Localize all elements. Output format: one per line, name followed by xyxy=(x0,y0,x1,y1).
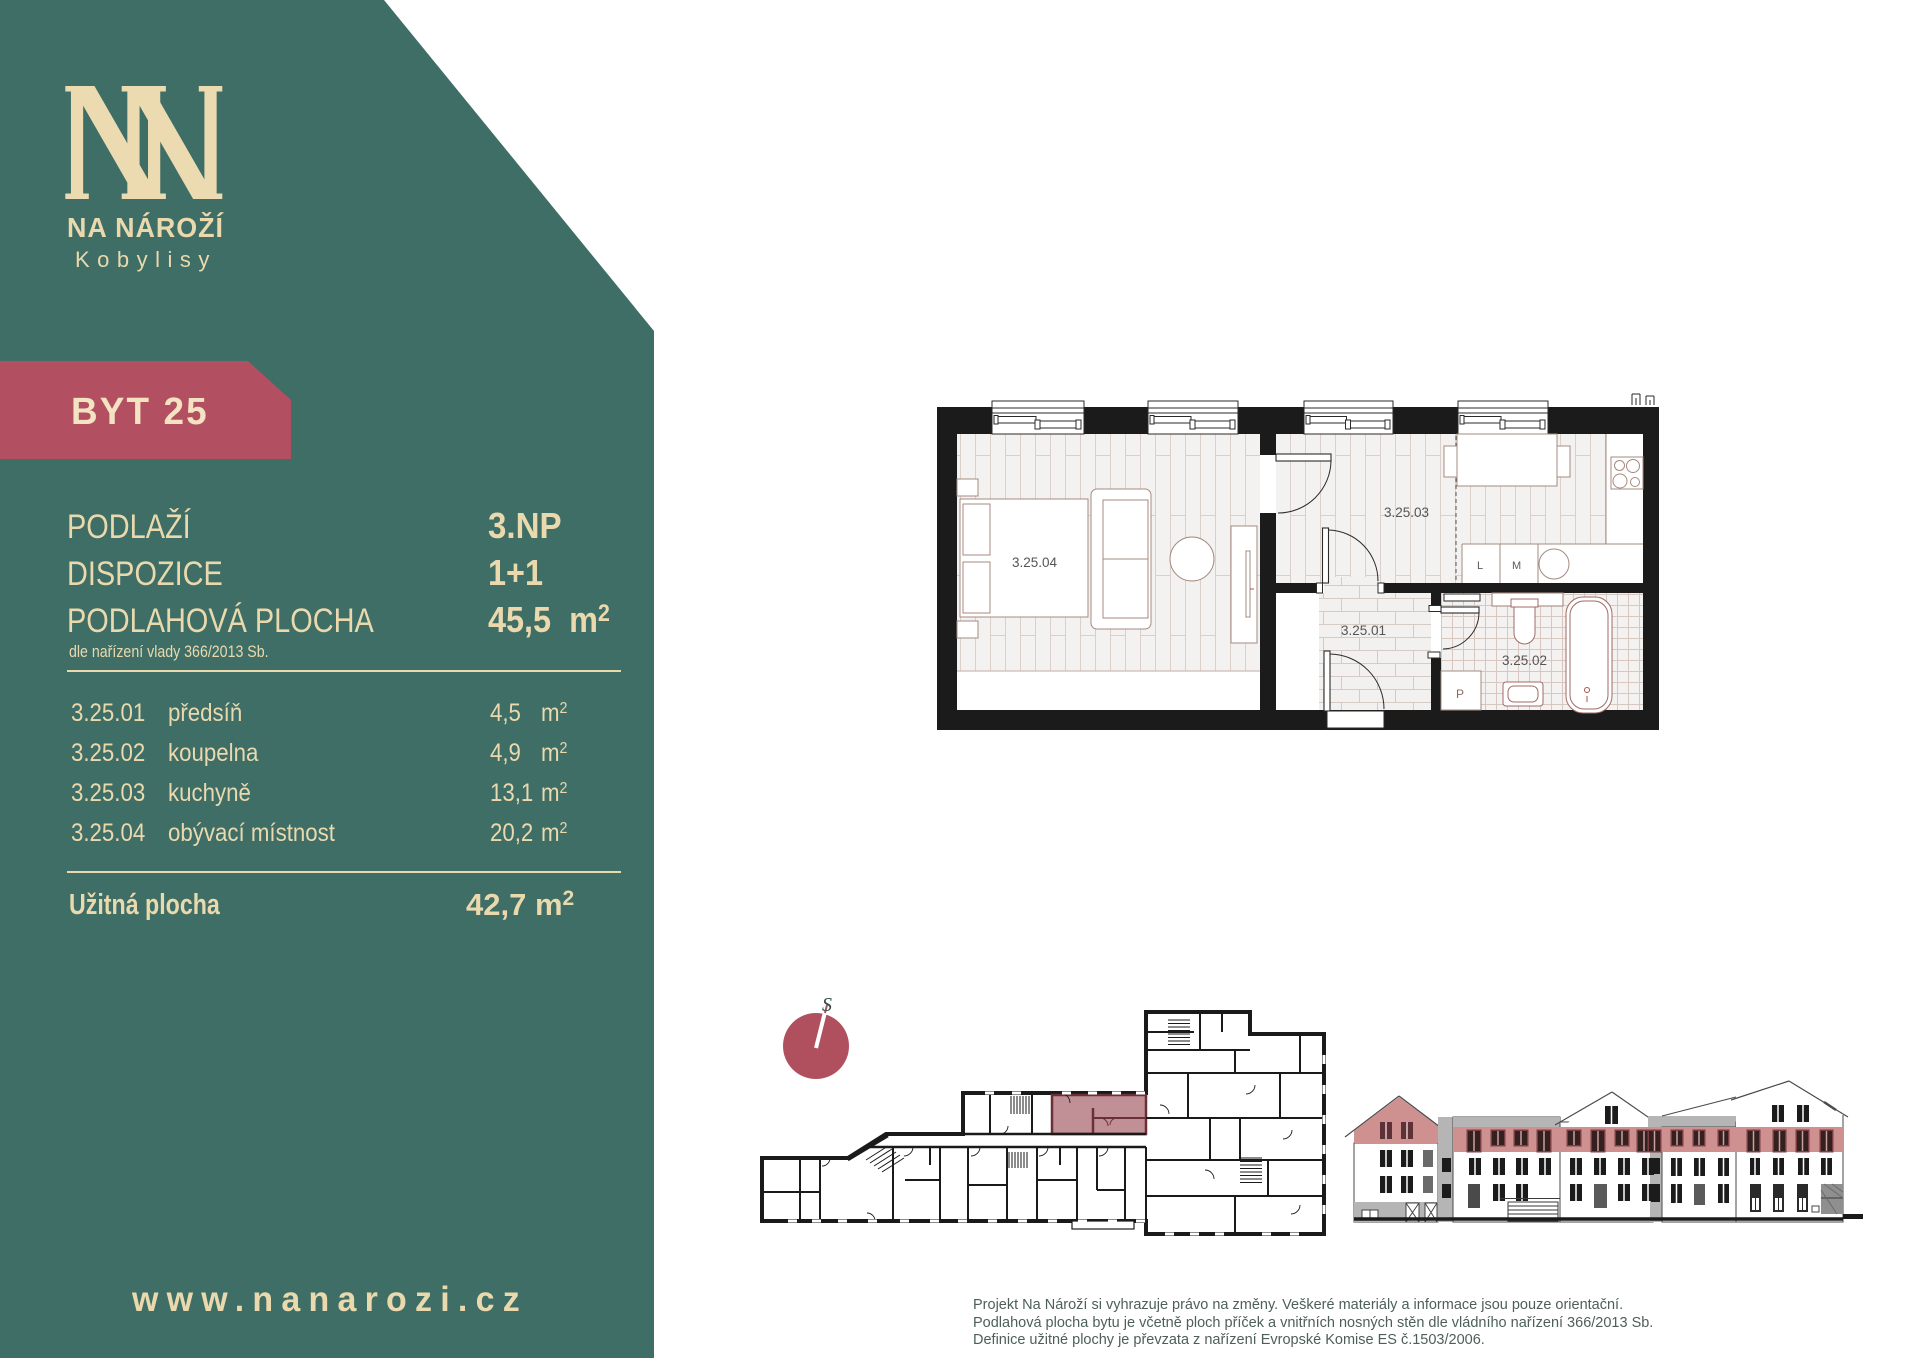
svg-text:3.25.02: 3.25.02 xyxy=(1502,653,1547,668)
svg-text:P: P xyxy=(1456,687,1464,701)
svg-text:L: L xyxy=(1477,560,1483,572)
svg-text:S: S xyxy=(822,994,832,1016)
svg-text:3.25.04: 3.25.04 xyxy=(1012,555,1058,570)
svg-text:M: M xyxy=(1512,560,1521,572)
svg-text:3.25.03: 3.25.03 xyxy=(1384,505,1429,520)
svg-text:3.25.01: 3.25.01 xyxy=(1341,623,1386,638)
